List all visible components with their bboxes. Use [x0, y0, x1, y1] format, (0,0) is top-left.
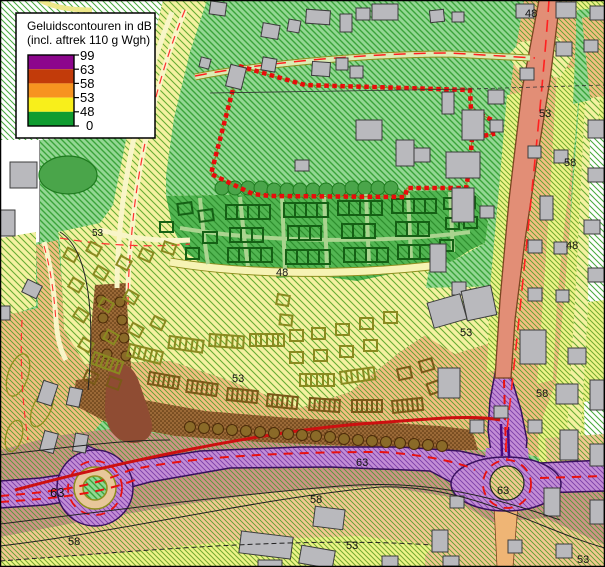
svg-text:63: 63: [80, 62, 94, 77]
svg-text:48: 48: [525, 8, 537, 20]
svg-text:58: 58: [68, 536, 80, 548]
svg-text:0: 0: [86, 118, 93, 133]
svg-text:58: 58: [80, 76, 94, 91]
svg-text:53: 53: [539, 108, 551, 120]
svg-text:53: 53: [577, 554, 589, 566]
svg-text:63: 63: [356, 457, 368, 469]
svg-text:53: 53: [80, 90, 94, 105]
svg-text:53: 53: [460, 327, 472, 339]
svg-text:58: 58: [310, 494, 322, 506]
svg-text:48: 48: [566, 240, 578, 252]
svg-text:63: 63: [497, 485, 509, 497]
svg-text:Geluidscontouren in dB: Geluidscontouren in dB: [27, 19, 152, 33]
svg-text:48: 48: [276, 267, 288, 279]
svg-text:99: 99: [80, 48, 94, 63]
svg-text:53: 53: [346, 540, 358, 552]
svg-text:53: 53: [232, 373, 244, 385]
svg-text:58: 58: [536, 388, 548, 400]
svg-text:48: 48: [80, 104, 94, 119]
svg-text:(incl. aftrek 110 g Wgh): (incl. aftrek 110 g Wgh): [27, 33, 150, 47]
svg-text:53: 53: [92, 228, 104, 239]
svg-text:63: 63: [50, 485, 64, 500]
svg-text:58: 58: [564, 157, 576, 169]
